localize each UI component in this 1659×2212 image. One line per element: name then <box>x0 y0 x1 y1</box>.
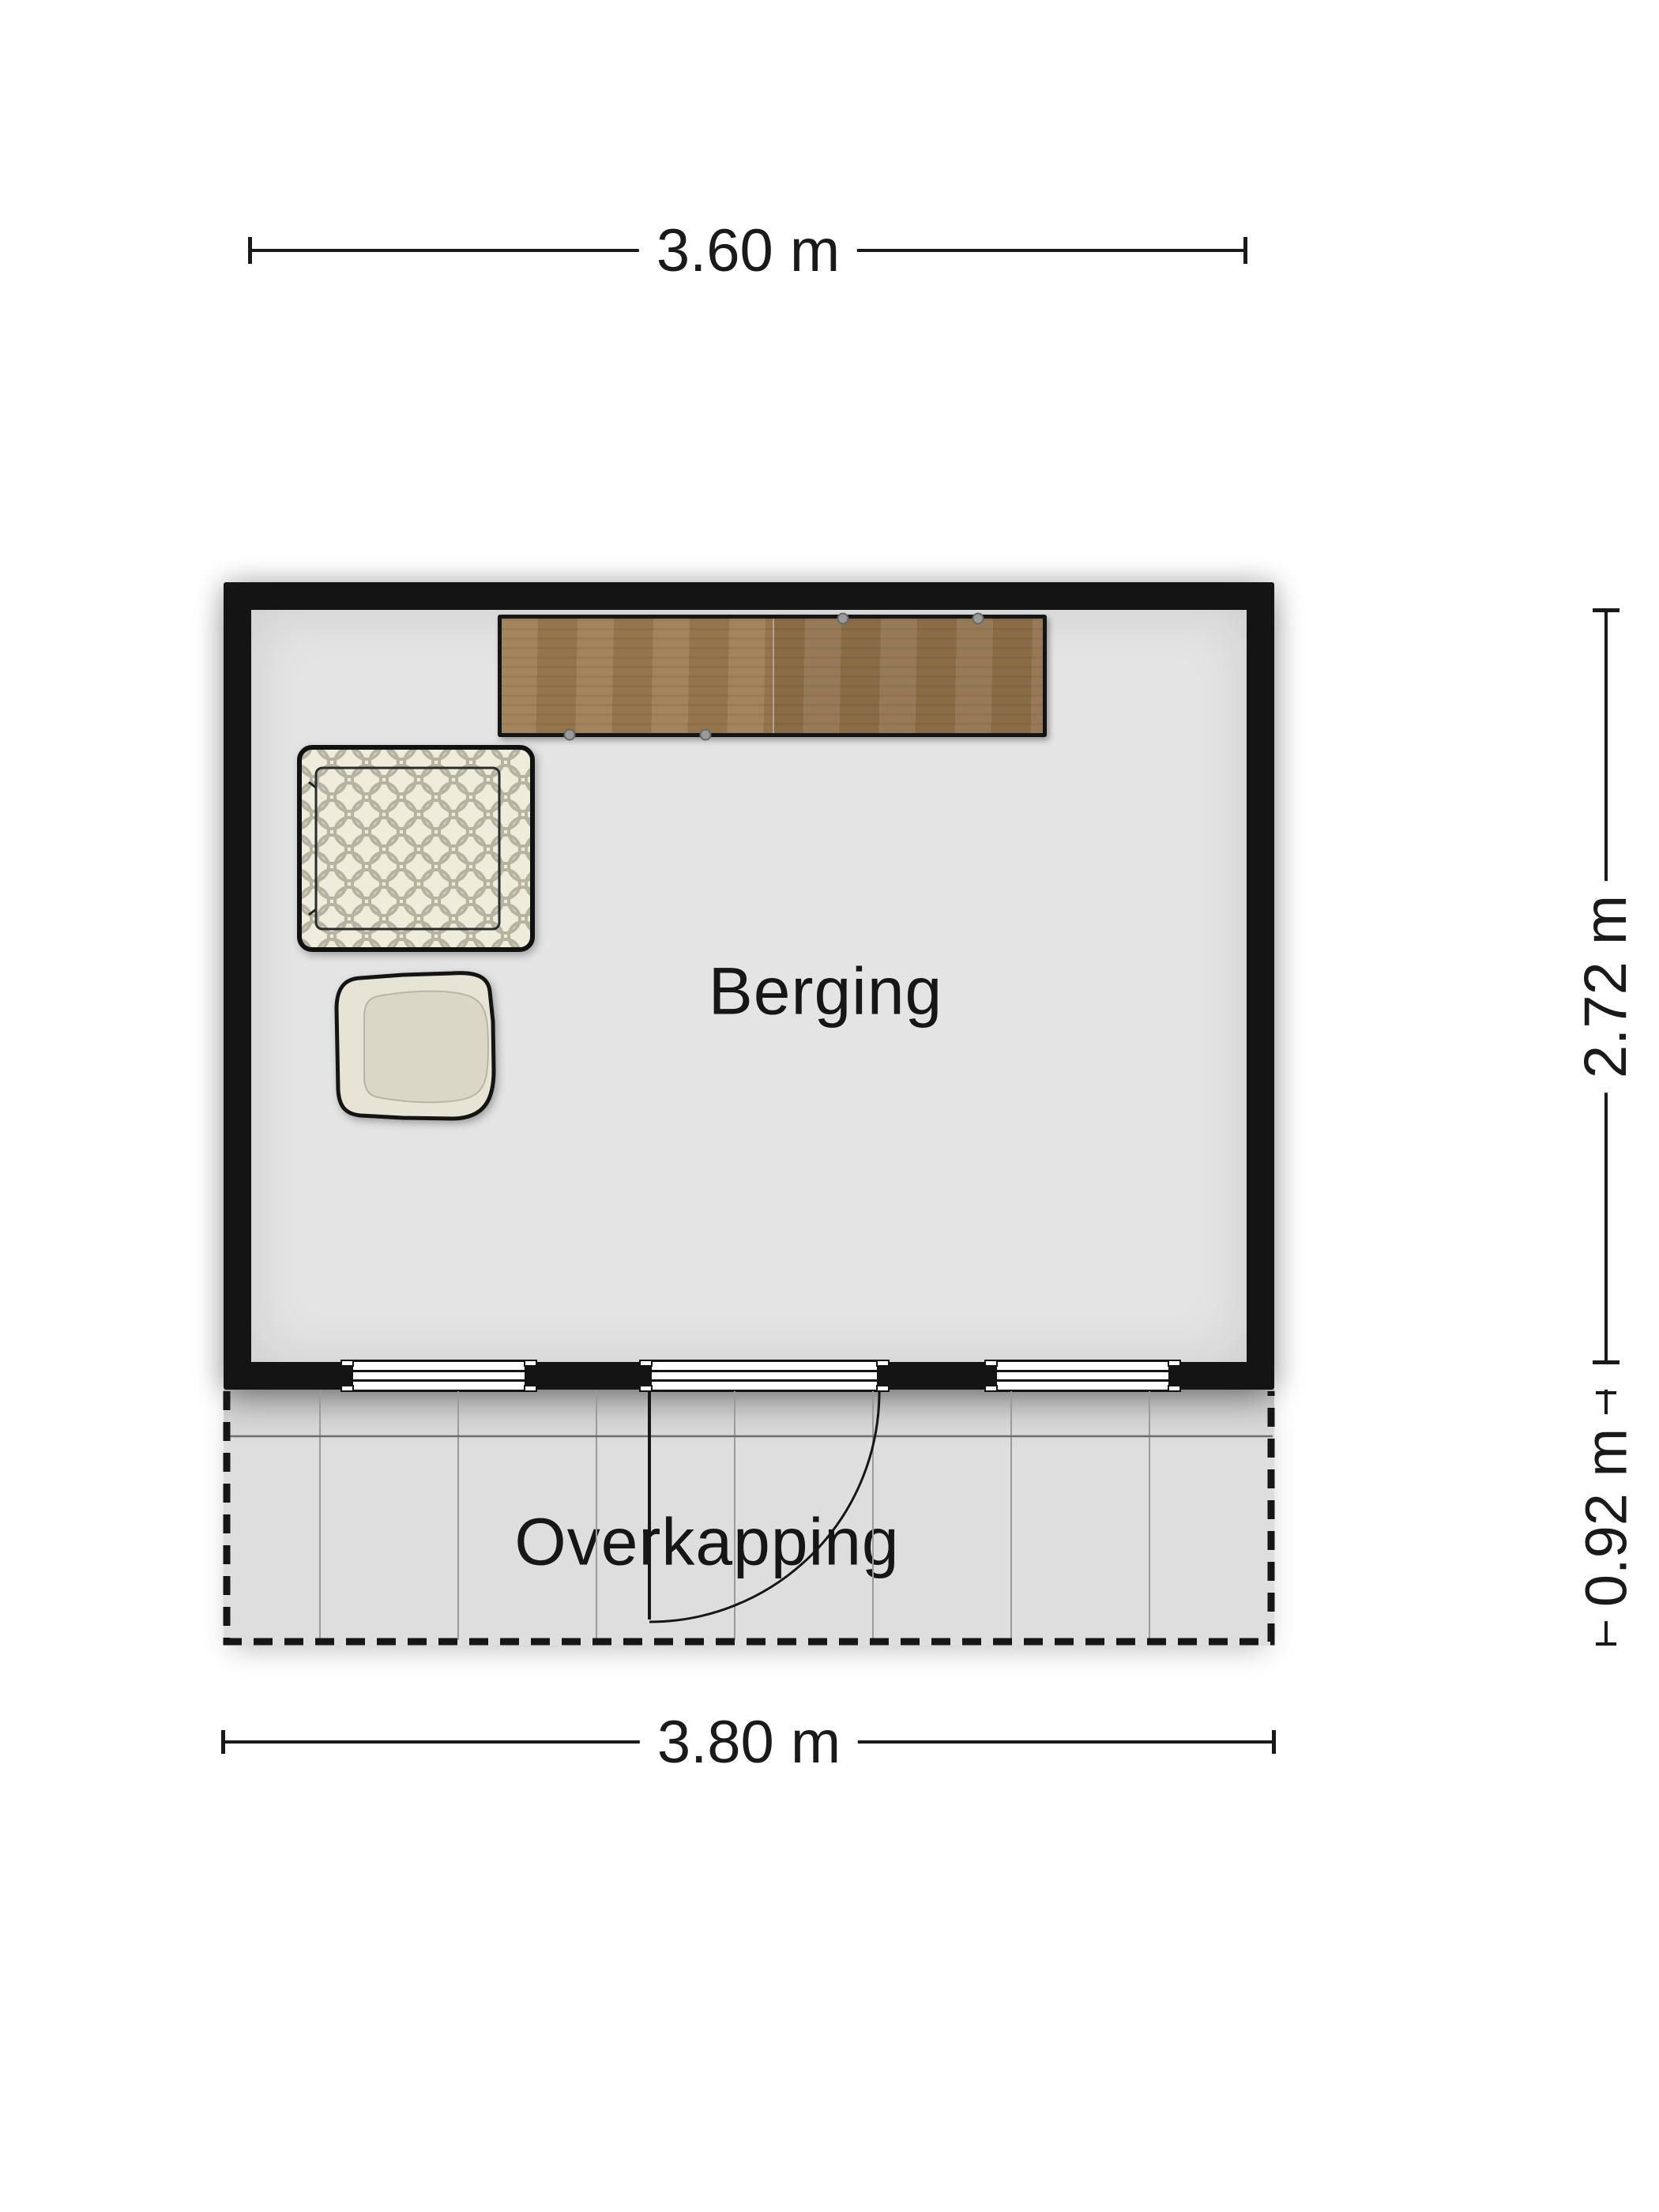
loveseat-body <box>299 747 532 950</box>
floorplan-canvas: 3.60 m <box>0 0 1659 2212</box>
worktop-dowel <box>700 729 712 741</box>
dimension-tick <box>1596 1391 1616 1394</box>
dimension-tick <box>248 237 252 264</box>
dimension-tick <box>1243 237 1247 264</box>
dimension-tick <box>1596 1642 1616 1646</box>
window-sill-nub <box>340 1385 354 1392</box>
canopy-label: Overkapping <box>514 1504 899 1581</box>
dimension-label-room-depth: 2.72 m <box>1573 881 1639 1093</box>
worktop-seam <box>773 619 774 733</box>
patterned-loveseat <box>297 745 535 952</box>
window-right <box>995 1360 1171 1392</box>
dimension-label-top: 3.60 m <box>639 218 857 284</box>
window-left <box>351 1360 527 1392</box>
dimension-label-canopy-depth: 0.92 m <box>1574 1414 1638 1621</box>
window-sill-nub <box>340 1360 354 1367</box>
dimension-tick <box>1593 608 1619 612</box>
worktop-dowel <box>837 613 849 625</box>
window-sill-nub <box>1168 1360 1181 1367</box>
wooden-worktop <box>498 615 1047 737</box>
window-sill-nub <box>639 1385 653 1392</box>
worktop-dowel <box>972 613 984 625</box>
dimension-tick <box>1593 1360 1619 1364</box>
window-sill-nub <box>639 1360 653 1367</box>
dimension-label-bottom: 3.80 m <box>640 1710 858 1776</box>
window-sill-nub <box>876 1385 890 1392</box>
window-sill-nub <box>876 1360 890 1367</box>
window-sill-nub <box>524 1360 537 1367</box>
window-sill-nub <box>1168 1385 1181 1392</box>
window-sill-nub <box>984 1360 998 1367</box>
dimension-tick <box>221 1730 225 1754</box>
tub-chair <box>333 971 504 1123</box>
room-label: Berging <box>709 954 943 1030</box>
worktop-dowel <box>564 729 576 741</box>
window-sill-nub <box>524 1385 537 1392</box>
window-sill-nub <box>984 1385 998 1392</box>
dimension-tick <box>1272 1730 1276 1754</box>
door-opening <box>649 1360 879 1392</box>
tub-chair-seat <box>364 991 488 1103</box>
